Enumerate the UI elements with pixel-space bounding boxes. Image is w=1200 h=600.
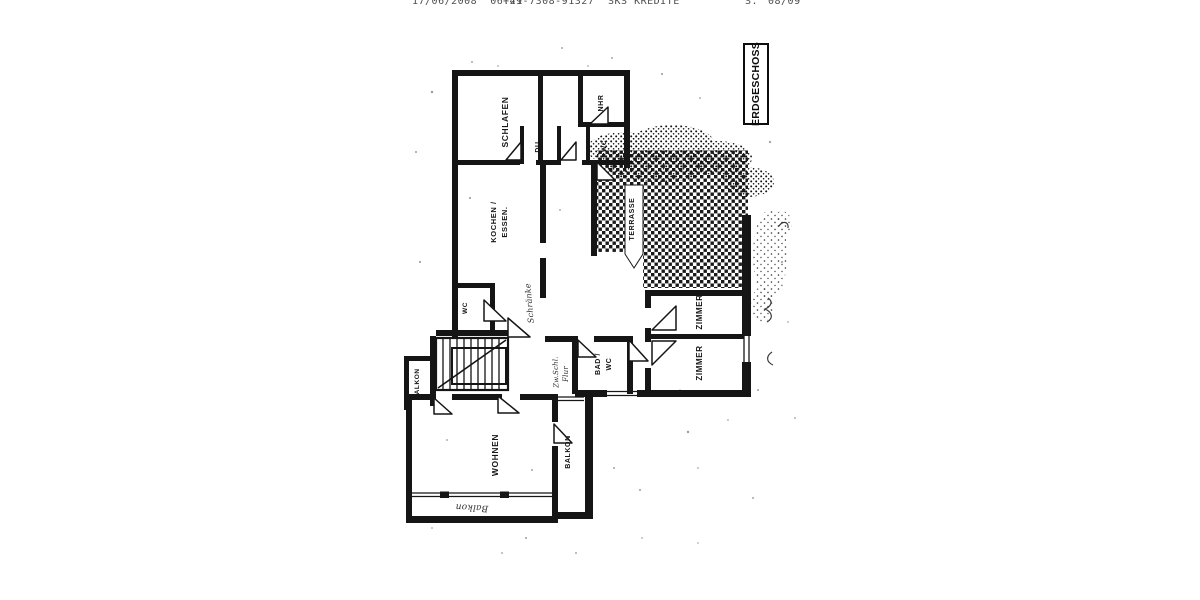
room-label-bad: BAD /	[595, 353, 602, 375]
fax-page-label: S.	[745, 0, 758, 7]
room-label-zimmer-1: ZIMMER	[695, 294, 704, 329]
room-label-du: DU	[535, 141, 542, 152]
floor-title: ERDGESCHOSS	[750, 42, 762, 126]
handwriting-flur: Flur	[562, 366, 570, 383]
room-label-nhr: NHR	[598, 95, 605, 112]
handwriting-balkon: Balkon	[455, 501, 489, 513]
room-label-bad-wc: WC	[606, 358, 613, 371]
room-label-essen: ESSEN.	[500, 206, 509, 237]
fax-sender: SKS KREDITE	[608, 0, 680, 7]
room-label-schlafen: SCHLAFEN	[500, 96, 510, 147]
room-label-wohnen: WOHNEN	[490, 434, 500, 476]
room-label-kochen: KOCHEN /	[489, 201, 498, 243]
room-label-zimmer-2: ZIMMER	[695, 345, 704, 380]
room-label-terrasse: TERRASSE	[629, 198, 636, 241]
fax-page-number: 08/09	[768, 0, 801, 7]
floorplan-canvas: ERDGESCHOSS SCHLAFEN NHR DU WC KOCHEN / …	[0, 0, 1200, 600]
handwriting-schraenke: Schränke	[523, 283, 535, 324]
fax-number: +49-7308-91327	[503, 0, 594, 7]
handwriting-zwschl: Zw.Schl.	[551, 356, 560, 389]
fax-page: 17/06/2008 06:21 +49-7308-91327 SKS KRED…	[0, 0, 1200, 600]
room-label-wc-mid: WC	[462, 302, 469, 314]
room-label-balkon-left: BALKON	[414, 368, 421, 399]
staircase	[436, 338, 508, 390]
floor-title-box: ERDGESCHOSS	[744, 42, 768, 126]
room-label-wc-top: WC	[601, 140, 608, 152]
fax-header: 17/06/2008 06:21 +49-7308-91327 SKS KRED…	[0, 0, 1200, 8]
room-label-balkon-right: BALKON	[565, 435, 572, 469]
